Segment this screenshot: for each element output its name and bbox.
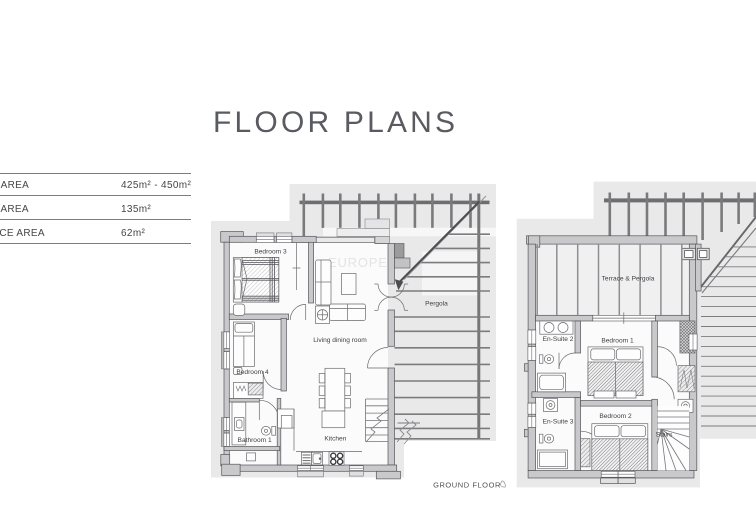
svg-text:GROUND FLOOR: GROUND FLOOR [433,481,501,490]
svg-text:En-Suite 2: En-Suite 2 [543,336,574,343]
svg-text:Bathroom 1: Bathroom 1 [238,437,272,444]
svg-text:Bedroom 4: Bedroom 4 [236,369,269,376]
svg-text:Terrace & Pergola: Terrace & Pergola [602,276,655,283]
svg-text:Bedroom 3: Bedroom 3 [254,248,287,255]
svg-text:EUROPE: EUROPE [328,255,388,270]
svg-text:Bedroom 1: Bedroom 1 [601,338,634,345]
svg-text:Stairs: Stairs [656,432,674,439]
svg-text:Bedroom 2: Bedroom 2 [599,413,632,420]
svg-text:Kitchen: Kitchen [324,436,346,443]
svg-text:En-Suite 3: En-Suite 3 [543,419,574,426]
svg-text:Pergola: Pergola [425,301,448,308]
svg-text:Living dining room: Living dining room [313,337,367,344]
